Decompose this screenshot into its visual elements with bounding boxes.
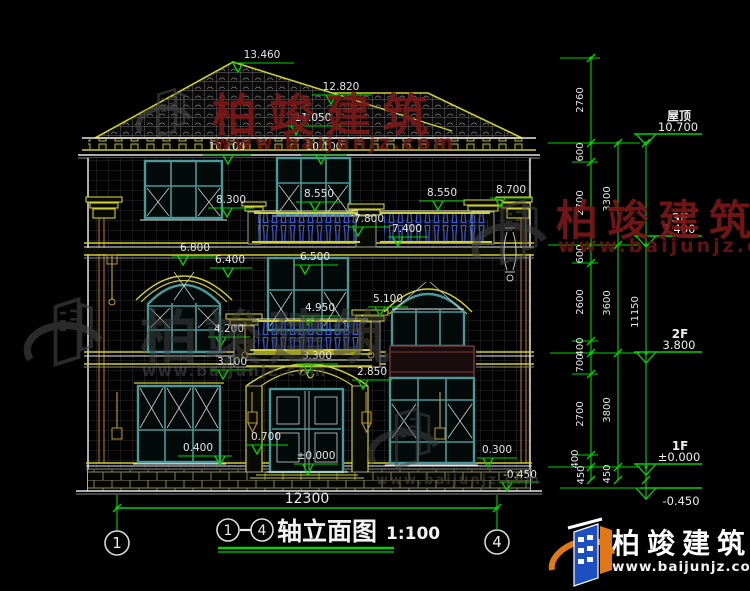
dim-text: 3600 xyxy=(602,290,613,315)
level-text: 8.550 xyxy=(304,188,334,200)
title-text: 轴立面图 xyxy=(277,517,377,546)
floor-marker-roof: 屋顶 10.700 xyxy=(634,109,702,145)
dim-text: 2700 xyxy=(575,401,586,426)
dim-text: 3800 xyxy=(602,397,613,422)
floor-level: 3.800 xyxy=(663,338,696,352)
level-text: 0.700 xyxy=(251,431,281,443)
level-text: ±0.000 xyxy=(297,450,336,462)
watermark-url-left: www.baijunjz.com xyxy=(142,362,327,380)
axis-number-right: 4 xyxy=(492,533,502,551)
axis-number-left: 1 xyxy=(112,534,122,552)
floor-marker-1f: 1F ±0.000 xyxy=(634,439,702,475)
level-text: 6.400 xyxy=(215,254,245,266)
floor-level: ±0.000 xyxy=(658,450,701,464)
overall-width-dim: 12300 xyxy=(285,491,330,507)
right-dimension-chain: 2760 600 2700 600 2600 400 700 2700 400 … xyxy=(548,54,650,500)
level-marker-peak: 13.460 xyxy=(230,49,294,72)
dim-text: 450 xyxy=(576,465,587,484)
footer-logo-icon xyxy=(552,519,612,586)
window-3f-left xyxy=(140,161,227,220)
footer-brand-name: 柏竣建筑 xyxy=(612,527,750,560)
drawing-title: 1 4 轴立面图 1:100 xyxy=(217,517,440,552)
balustrade-3f-left xyxy=(258,214,356,242)
footer-brand-url: www.baijunjz.com xyxy=(612,559,750,575)
level-text: 7.400 xyxy=(392,223,422,235)
dim-text: 11150 xyxy=(630,296,641,328)
right-floor-markers: 屋顶 10.700 3F 7.400 2F 3.800 1F ±0.000 -0… xyxy=(634,109,702,508)
level-text: 8.300 xyxy=(216,194,246,206)
title-scale: 1:100 xyxy=(386,524,440,544)
spandrel xyxy=(390,346,474,378)
title-axis-start: 1 xyxy=(224,523,233,539)
footer-logo: 柏竣建筑 www.baijunjz.com xyxy=(552,519,750,586)
floor-marker-2f: 2F 3.800 xyxy=(634,327,702,363)
level-text: 0.400 xyxy=(183,442,213,454)
floor-level: -0.450 xyxy=(662,494,699,508)
level-text: 8.550 xyxy=(427,187,457,199)
dim-text: 2760 xyxy=(575,87,586,112)
watermark-url-bottom: www.baijunjz.com xyxy=(376,473,541,488)
dim-text: 2600 xyxy=(575,289,586,314)
level-text: 6.800 xyxy=(180,242,210,254)
level-text: 8.700 xyxy=(496,184,526,196)
level-text: 6.500 xyxy=(300,251,330,263)
dim-text: 600 xyxy=(575,142,586,161)
level-text: 13.460 xyxy=(244,49,281,61)
floor-level: 10.700 xyxy=(658,120,698,134)
level-text: 0.300 xyxy=(482,444,512,456)
dim-text: 450 xyxy=(602,464,613,483)
title-axis-end: 4 xyxy=(258,523,267,539)
dim-text: 700 xyxy=(575,353,586,372)
elevation-drawing: 13.460 12.820 11.050 10.100 10.100 8.300… xyxy=(0,0,750,591)
watermark-url-right: www.baijunjz.com xyxy=(558,235,750,257)
level-text: 7.800 xyxy=(354,213,384,225)
watermark-url-top: www.baijunjz.com xyxy=(214,132,456,154)
